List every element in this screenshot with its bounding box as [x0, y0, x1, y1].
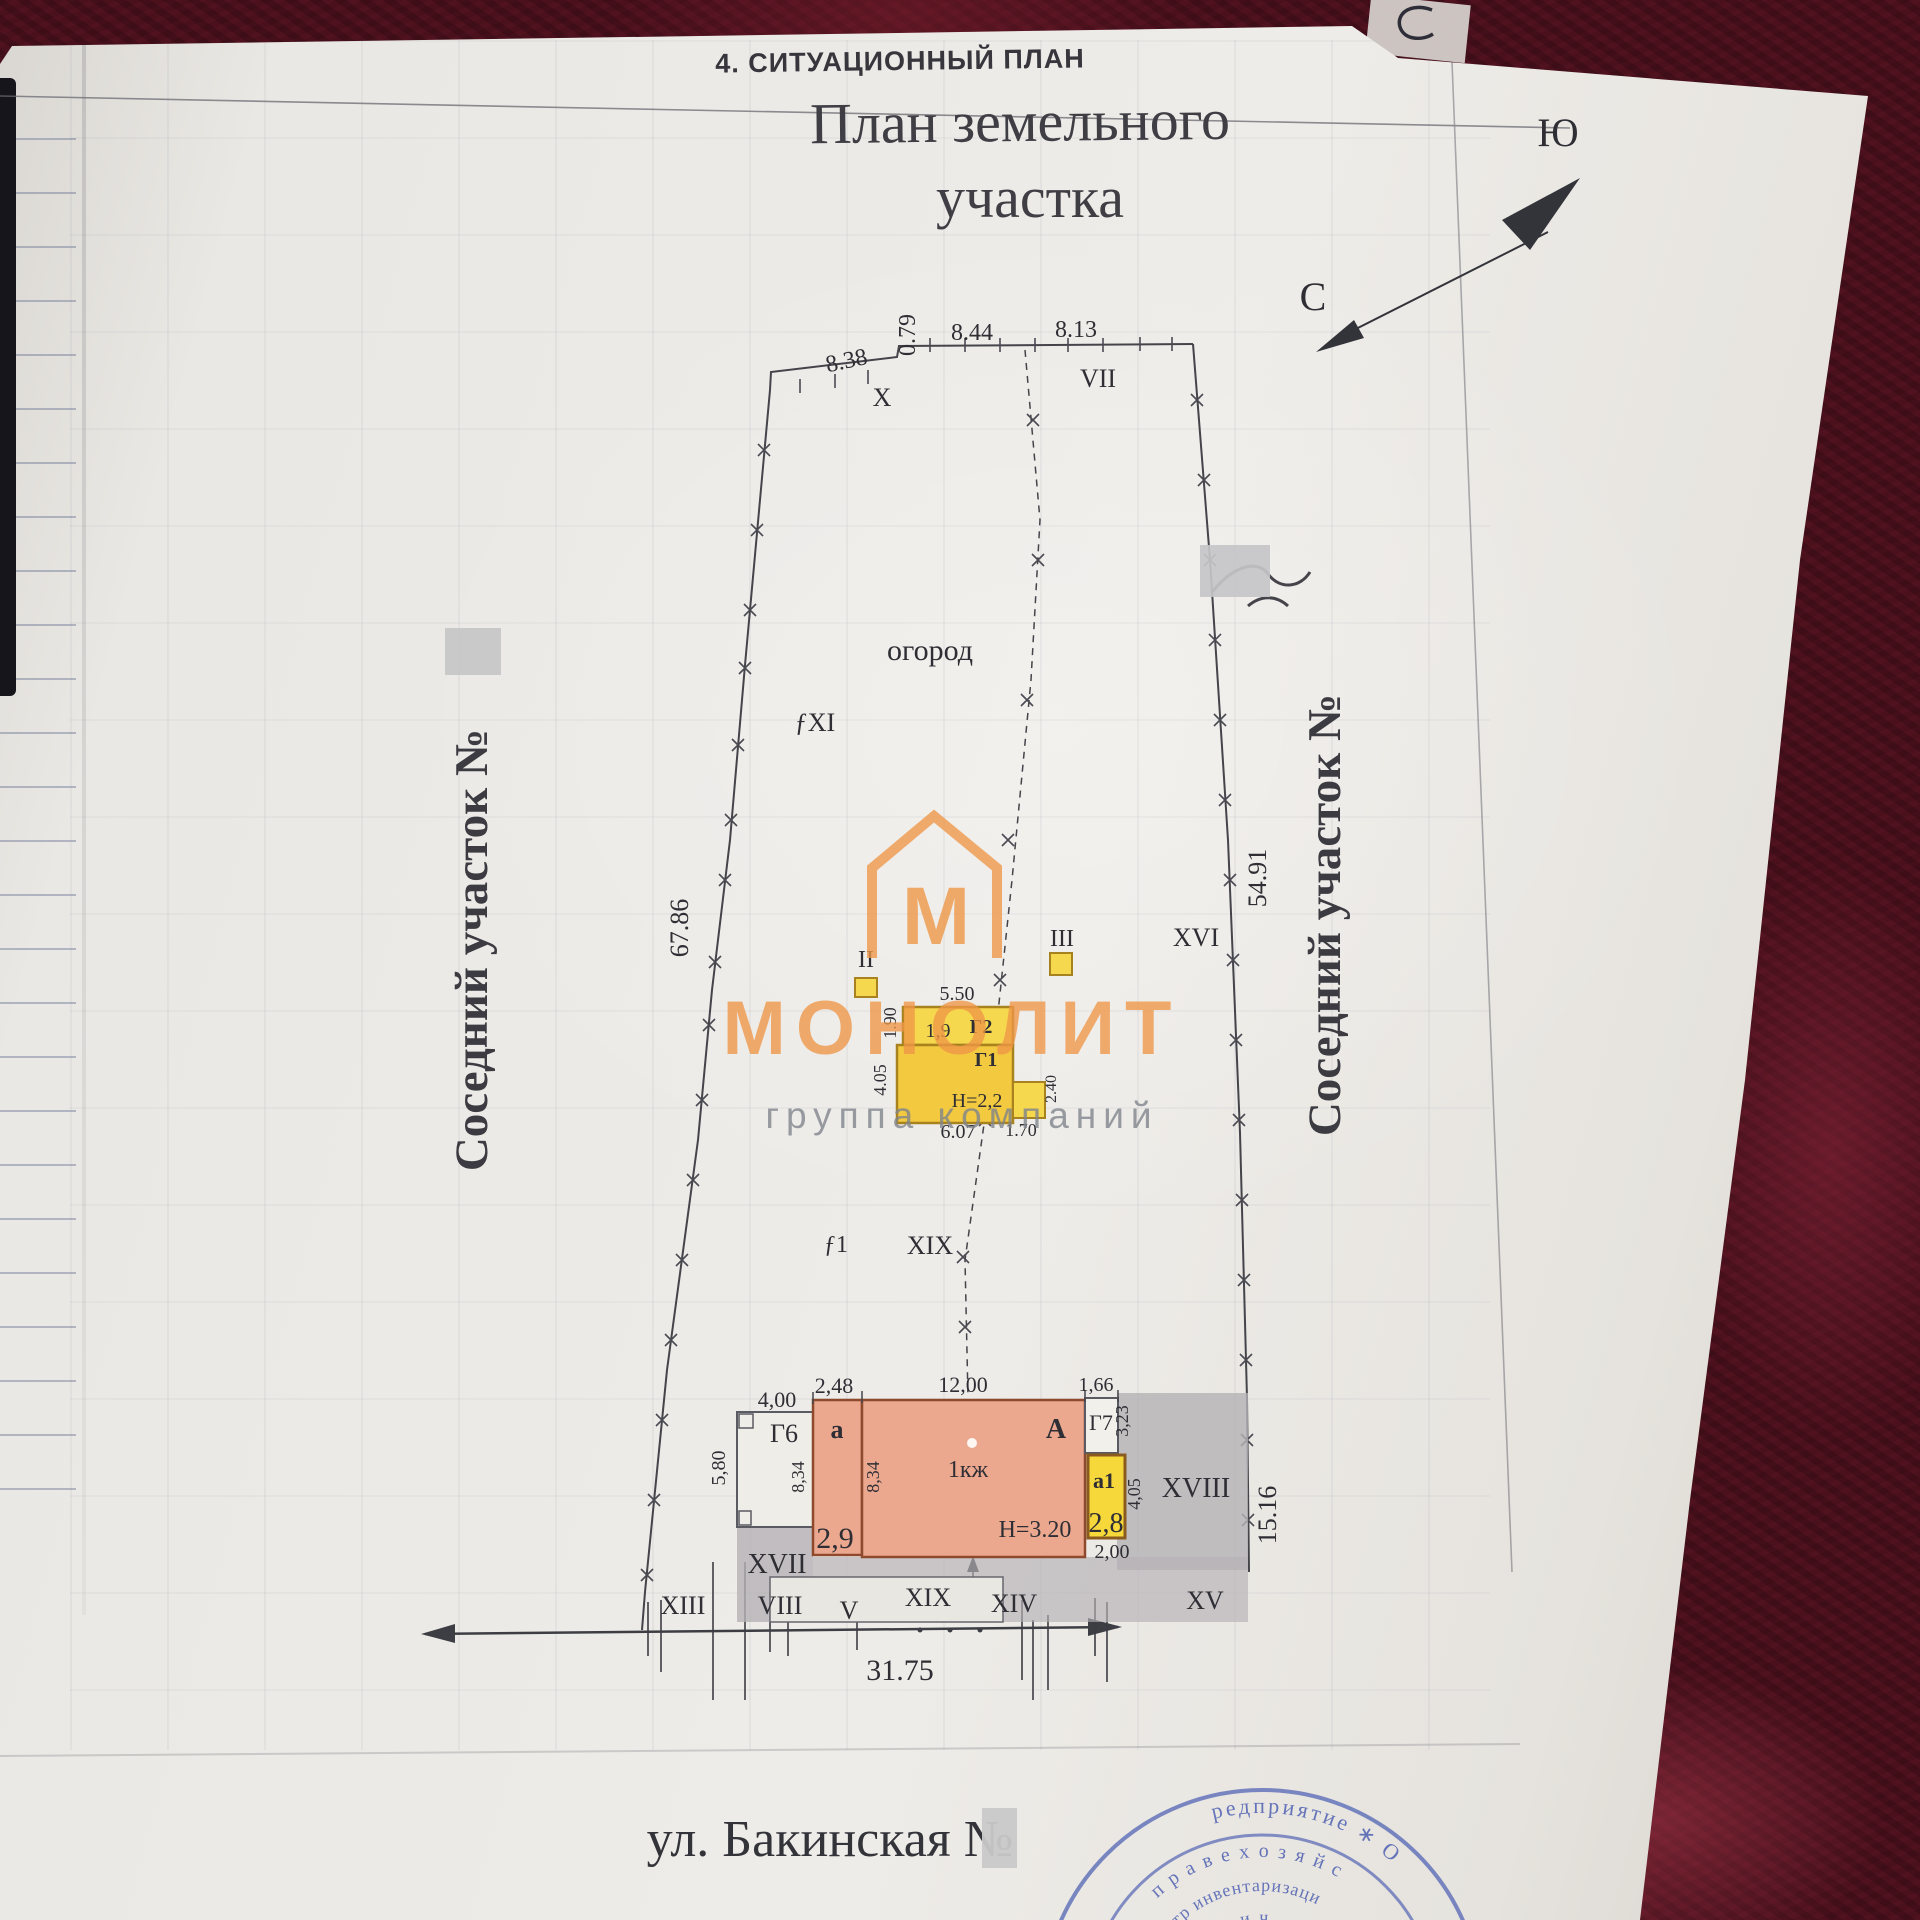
garden-label: огород	[887, 634, 973, 667]
page-title-line1: План земельного	[690, 85, 1351, 159]
house-annex-name: а1	[1093, 1468, 1115, 1493]
page: Ю С 8.38 0.79 8.44 8.13 67.86 54.91 15.1…	[0, 0, 1920, 1920]
stamp: редприятие ∗ О п р а в е х о з я й с нтр…	[1042, 1790, 1482, 1920]
point-xiii: XIII	[661, 1591, 706, 1620]
point-xvii: XVII	[747, 1549, 806, 1580]
watermark-tagline: группа компаний	[732, 1095, 1192, 1137]
dim-top-3: 8.44	[951, 320, 993, 346]
house-dim-g7-top: 1,66	[1079, 1374, 1114, 1396]
point-x: X	[873, 383, 892, 412]
point-xviii: XVIII	[1162, 1473, 1230, 1504]
pen-c-mark	[1399, 7, 1433, 38]
house-shed-left-name: Г6	[770, 1419, 798, 1448]
compass-south-label: Ю	[1537, 110, 1578, 155]
house-annex-area: 2,8	[1089, 1508, 1124, 1539]
point-iii: III	[1050, 926, 1074, 952]
redaction-box-street	[982, 1808, 1017, 1868]
house-dim-wing-top: 2,48	[815, 1373, 854, 1398]
dim-top-4: 8.13	[1055, 317, 1097, 343]
house-dim-wing-side: 8,34	[788, 1461, 808, 1493]
dim-right-side: 54.91	[1243, 849, 1272, 908]
photo-of-plan-document: { "document": { "section_header": "4. СИ…	[0, 0, 1920, 1920]
house-wing-name: а	[831, 1415, 844, 1444]
handwritten-mark	[1380, 0, 1450, 50]
house-storeys: 1кж	[948, 1457, 989, 1483]
house-dim-main-side: 8,34	[863, 1461, 883, 1493]
dim-street-front: 31.75	[866, 1654, 934, 1687]
street-label: ул. Бакинская №	[560, 1810, 1100, 1869]
point-ix: ƒXI	[795, 708, 835, 737]
house-shed-right-name: Г7	[1089, 1410, 1113, 1435]
stamp-arc-4: т к и ч	[1202, 1907, 1271, 1920]
neighbor-right-label: Соседний участок №	[1298, 694, 1352, 1136]
house-dim-g6-top: 4,00	[758, 1387, 797, 1412]
dim-left-side: 67.86	[665, 899, 694, 958]
house-height: Н=3.20	[999, 1517, 1072, 1543]
house-main-name: А	[1046, 1414, 1067, 1445]
redaction-box-right	[1200, 545, 1270, 597]
compass-arrow	[1316, 178, 1580, 352]
point-xvi: XVI	[1173, 923, 1219, 952]
house-dim-main-top: 12,00	[938, 1372, 988, 1397]
point-xv: XV	[1186, 1586, 1224, 1615]
house-dim-g6-side: 5,80	[708, 1451, 730, 1486]
point-f1: ƒ1	[824, 1232, 848, 1258]
house-wing-area: 2,9	[816, 1522, 854, 1555]
point-viii: VIII	[758, 1591, 803, 1620]
point-xix-front: XIX	[905, 1583, 951, 1612]
dim-top-2: 0.79	[895, 314, 921, 356]
watermark-logo: М	[850, 795, 1050, 965]
page-title-line2: участка	[790, 164, 1270, 231]
house-dim-g7-side: 3,23	[1112, 1405, 1132, 1437]
neighbor-left-label: Соседний участок №	[445, 729, 499, 1171]
dim-right-front: 15.16	[1253, 1486, 1282, 1545]
compass-north-label: С	[1300, 274, 1327, 319]
watermark-brand: МОНОЛИТ	[702, 985, 1202, 1072]
point-v: V	[840, 1596, 859, 1625]
point-xix-mid: XIX	[907, 1231, 953, 1260]
watermark-logo-letter: М	[902, 871, 970, 962]
svg-text:т к и ч: т к и ч	[1202, 1907, 1271, 1920]
redaction-box-left	[445, 628, 501, 675]
house-dim-annex-bottom: 2,00	[1095, 1541, 1130, 1563]
point-vii: VII	[1080, 364, 1116, 393]
dim-top-1: 8.38	[823, 344, 869, 378]
point-xiv: XIV	[991, 1589, 1037, 1618]
house-dim-annex-side: 4,05	[1124, 1478, 1144, 1510]
